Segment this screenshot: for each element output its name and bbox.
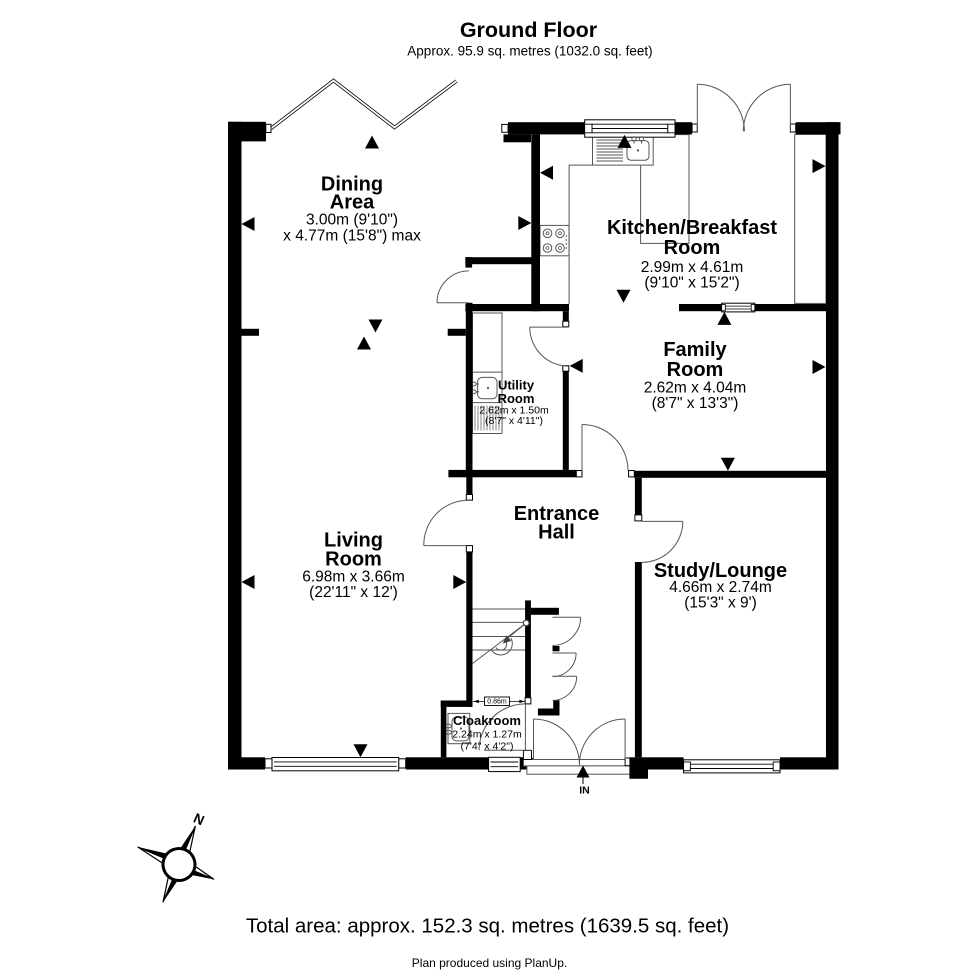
svg-text:Cloakroom: Cloakroom (453, 713, 521, 728)
svg-text:(9'10" x 15'2"): (9'10" x 15'2") (644, 275, 739, 292)
svg-text:Total area: approx. 152.3 sq.: Total area: approx. 152.3 sq. metres (16… (246, 915, 729, 938)
svg-text:x 4.77m (15'8") max: x 4.77m (15'8") max (283, 228, 421, 245)
svg-text:(8'7" x 13'3"): (8'7" x 13'3") (652, 395, 739, 412)
svg-text:2.62m x 4.04m: 2.62m x 4.04m (644, 379, 747, 396)
svg-text:Ground Floor: Ground Floor (460, 18, 598, 42)
svg-text:0.86m: 0.86m (487, 699, 507, 706)
svg-text:Room: Room (325, 548, 382, 570)
svg-text:3.00m (9'10"): 3.00m (9'10") (306, 212, 398, 229)
svg-text:2.24m x 1.27m: 2.24m x 1.27m (452, 729, 522, 741)
svg-text:IN: IN (579, 784, 590, 796)
svg-text:2.99m x 4.61m: 2.99m x 4.61m (641, 259, 744, 276)
svg-text:Plan produced using PlanUp.: Plan produced using PlanUp. (412, 956, 567, 970)
svg-text:(7'4" x 4'2"): (7'4" x 4'2") (461, 741, 514, 753)
svg-text:(22'11" x 12'): (22'11" x 12') (309, 584, 398, 601)
svg-text:6.98m x 3.66m: 6.98m x 3.66m (302, 569, 405, 586)
svg-text:Hall: Hall (538, 522, 575, 544)
svg-text:Approx. 95.9 sq. metres (1032.: Approx. 95.9 sq. metres (1032.0 sq. feet… (407, 44, 652, 59)
svg-text:Area: Area (330, 192, 375, 214)
svg-text:(15'3" x 9'): (15'3" x 9') (684, 594, 757, 611)
svg-text:(8'7" x 4'11"): (8'7" x 4'11") (485, 415, 543, 427)
svg-text:Room: Room (667, 359, 724, 381)
svg-text:Family: Family (663, 339, 727, 361)
svg-text:Room: Room (664, 237, 721, 259)
svg-text:Kitchen/Breakfast: Kitchen/Breakfast (607, 217, 777, 239)
